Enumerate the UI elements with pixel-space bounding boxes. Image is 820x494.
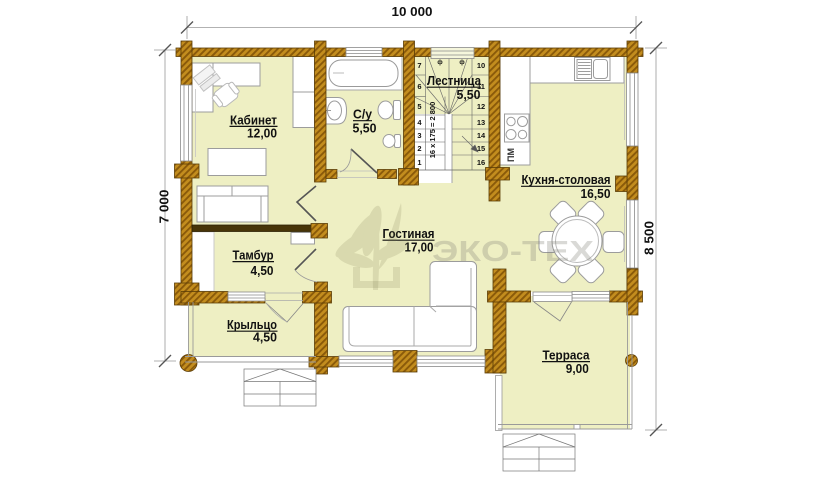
svg-text:3: 3: [417, 131, 421, 140]
svg-text:5: 5: [417, 102, 421, 111]
svg-text:13: 13: [477, 118, 485, 127]
svg-text:15: 15: [477, 144, 485, 153]
svg-text:16 x 175 = 2 800: 16 x 175 = 2 800: [428, 102, 437, 159]
svg-text:8 500: 8 500: [643, 221, 657, 255]
svg-text:Терраса: Терраса: [543, 349, 591, 363]
svg-text:Тамбур: Тамбур: [233, 249, 274, 263]
svg-text:6: 6: [417, 82, 421, 91]
svg-text:7: 7: [417, 61, 421, 70]
svg-text:10: 10: [477, 61, 485, 70]
svg-text:2: 2: [417, 144, 421, 153]
svg-text:12,00: 12,00: [247, 127, 277, 141]
svg-text:1: 1: [417, 158, 421, 167]
svg-text:С/у: С/у: [353, 108, 372, 122]
svg-text:10 000: 10 000: [392, 5, 433, 19]
svg-text:Лестница: Лестница: [427, 74, 482, 88]
svg-text:5,50: 5,50: [457, 88, 481, 102]
svg-text:4,50: 4,50: [253, 331, 277, 345]
svg-text:Кухня-столовая: Кухня-столовая: [522, 173, 611, 187]
svg-text:Кабинет: Кабинет: [230, 114, 277, 128]
svg-text:9,00: 9,00: [566, 362, 589, 376]
svg-text:4,50: 4,50: [251, 264, 274, 278]
svg-text:ПМ: ПМ: [506, 148, 516, 162]
svg-text:ф: ф: [459, 59, 464, 66]
svg-text:7 000: 7 000: [158, 189, 172, 223]
svg-text:16,50: 16,50: [581, 187, 611, 201]
svg-text:ф: ф: [437, 59, 442, 66]
svg-text:ЭКО-ТЕХ: ЭКО-ТЕХ: [432, 236, 595, 268]
svg-text:14: 14: [477, 131, 486, 140]
svg-text:16: 16: [477, 158, 485, 167]
svg-text:5,50: 5,50: [353, 122, 377, 136]
svg-text:12: 12: [477, 102, 485, 111]
